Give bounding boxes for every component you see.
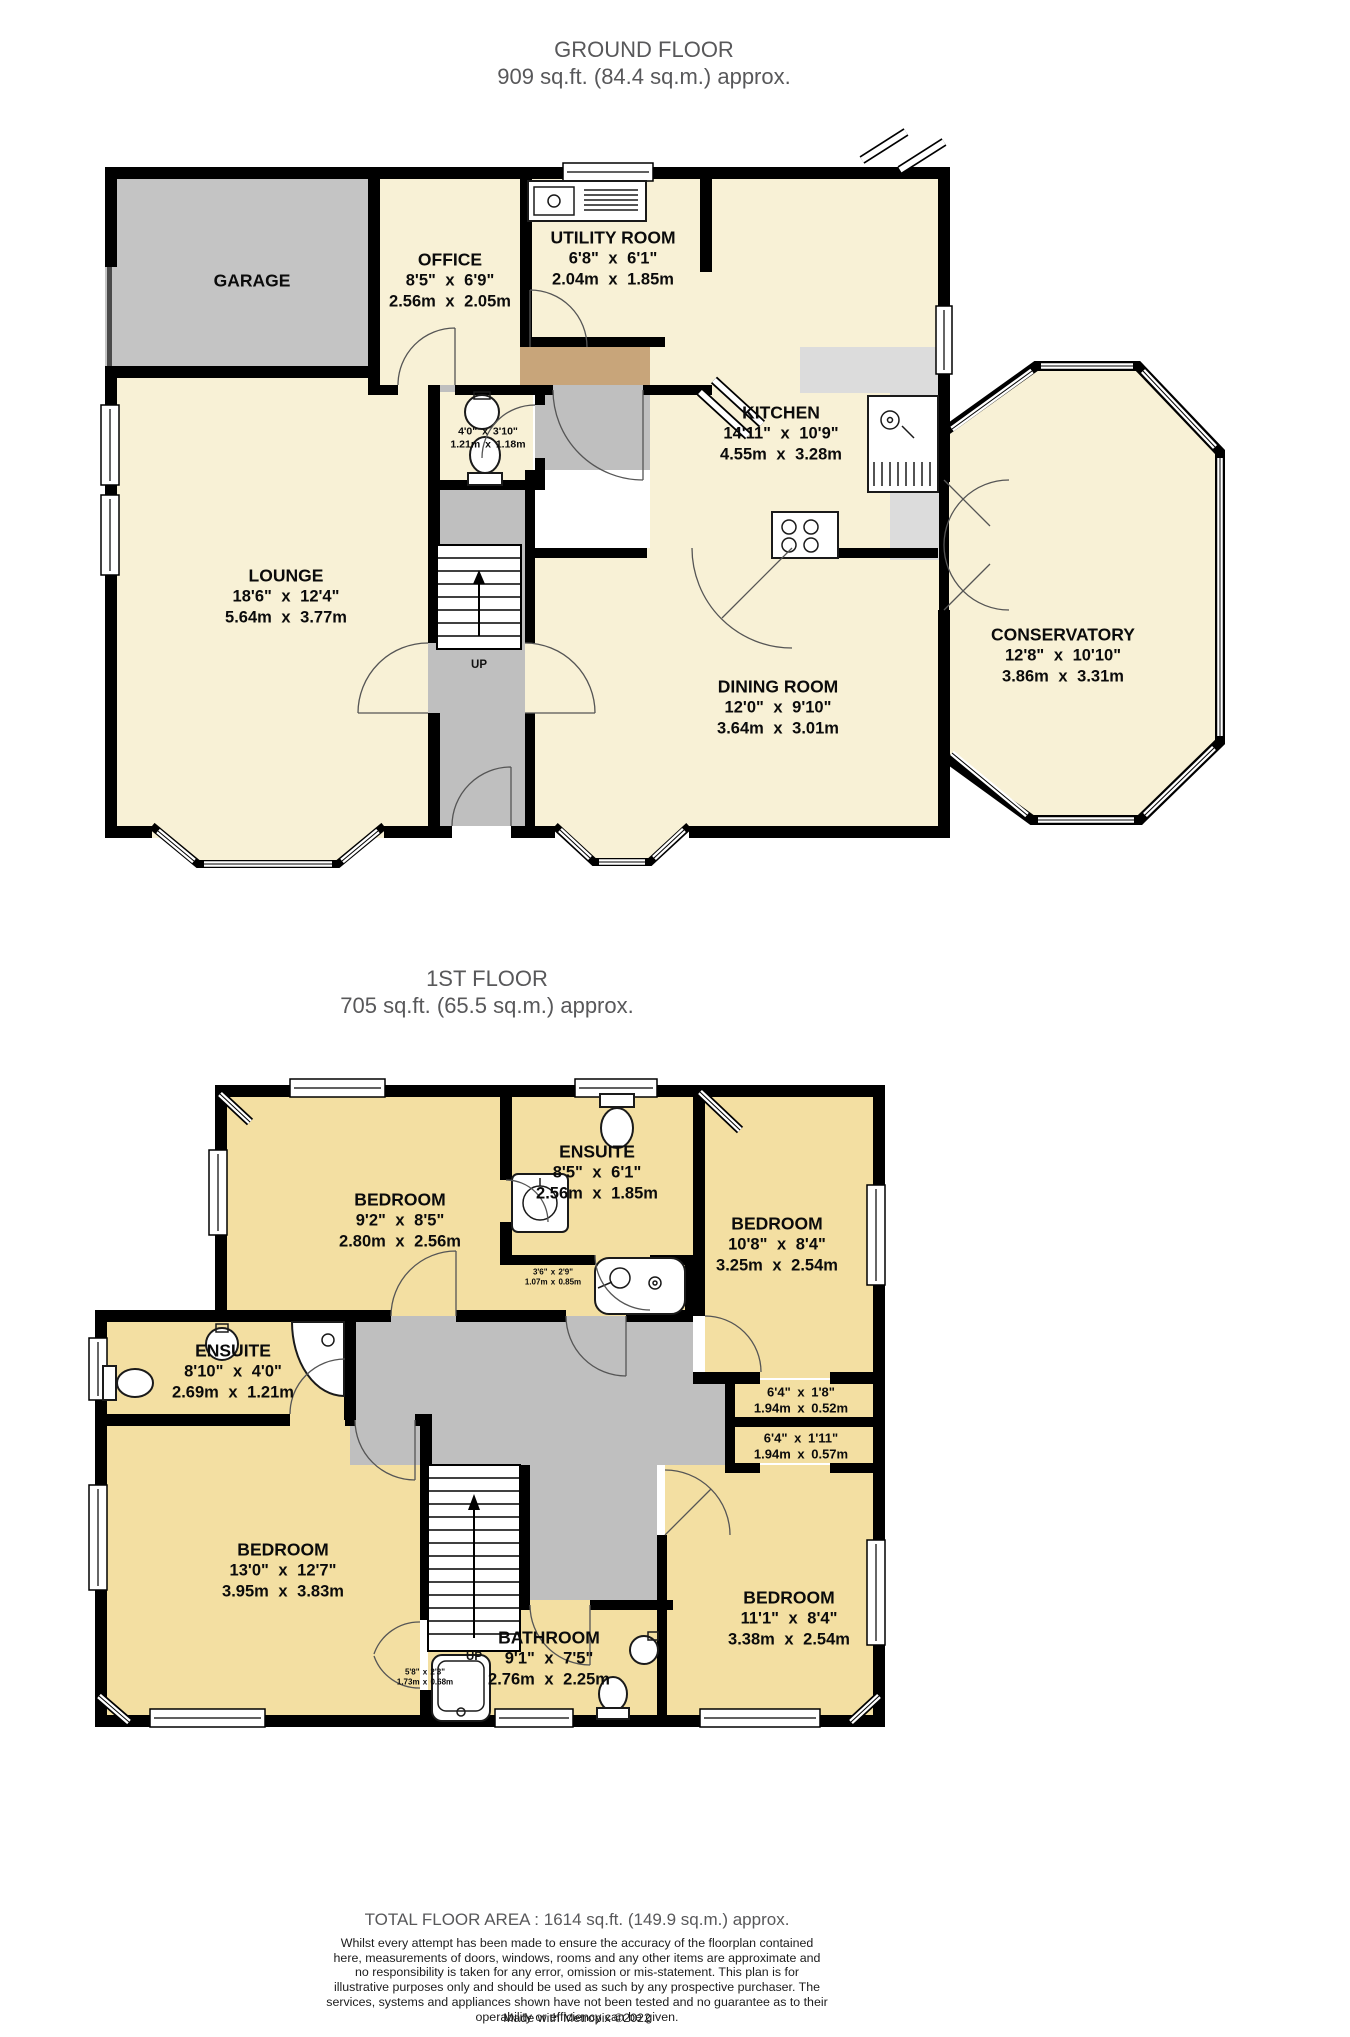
room-label-utility: UTILITY ROOM 6'8" x 6'1" 2.04m x 1.85m xyxy=(550,228,675,291)
room-name: ENSUITE xyxy=(172,1341,294,1362)
room-name: LOUNGE xyxy=(225,566,347,587)
room-size-imperial: 14'11" x 10'9" xyxy=(720,424,842,445)
hob-icon xyxy=(772,512,838,558)
room-size-metric: 2.56m x 1.85m xyxy=(536,1184,658,1205)
room-size-imperial: 3'6" x 2'9" xyxy=(525,1268,581,1278)
room-name: BEDROOM xyxy=(222,1540,344,1561)
room-size-metric: 2.76m x 2.25m xyxy=(488,1670,610,1691)
back-door xyxy=(862,132,944,170)
room-size-imperial: 8'5" x 6'1" xyxy=(536,1163,658,1184)
ground-floor-title-area: 909 sq.ft. (84.4 sq.m.) approx. xyxy=(497,63,790,90)
room-size-imperial: 8'5" x 6'9" xyxy=(389,271,511,292)
room-label-bedroom-top-right: BEDROOM 10'8" x 8'4" 3.25m x 2.54m xyxy=(716,1214,838,1277)
room-label-ensuite-top: ENSUITE 8'5" x 6'1" 2.56m x 1.85m xyxy=(536,1142,658,1205)
metropix-credit: Made with Metropix ©2022 xyxy=(503,2011,651,2025)
room-size-metric: 2.04m x 1.85m xyxy=(550,270,675,291)
floorplan-canvas: GROUND FLOOR 909 sq.ft. (84.4 sq.m.) app… xyxy=(0,0,1350,2037)
room-label-wc: 4'0" x 3'10" 1.21m x 1.18m xyxy=(450,426,525,451)
room-name: ENSUITE xyxy=(536,1142,658,1163)
ensuite-top-toilet-icon xyxy=(600,1094,634,1148)
kitchen-sink-icon xyxy=(868,396,938,492)
room-label-garage: GARAGE xyxy=(214,271,291,292)
room-size-imperial: 6'4" x 1'11" xyxy=(754,1431,848,1447)
conservatory-shell xyxy=(944,366,1220,820)
ground-stairs xyxy=(437,545,521,649)
room-size-metric: 2.56m x 2.05m xyxy=(389,292,511,313)
room-size-metric: 1.73m x 0.68m xyxy=(397,1677,453,1687)
room-size-imperial: 18'6" x 12'4" xyxy=(225,587,347,608)
first-floor-title-name: 1ST FLOOR xyxy=(340,965,633,992)
room-name: OFFICE xyxy=(389,250,511,271)
ensuite-left-toilet-icon xyxy=(103,1366,153,1400)
room-label-corridor: 3'6" x 2'9" 1.07m x 0.85m xyxy=(525,1268,581,1287)
room-label-bedroom-bottom-left: BEDROOM 13'0" x 12'7" 3.95m x 3.83m xyxy=(222,1540,344,1603)
room-size-imperial: 12'0" x 9'10" xyxy=(717,698,839,719)
room-label-closet: 5'8" x 2'3" 1.73m x 0.68m xyxy=(397,1668,453,1687)
room-size-imperial: 12'8" x 10'10" xyxy=(991,646,1135,667)
room-name: GARAGE xyxy=(214,271,291,292)
bathtub-icon xyxy=(432,1655,490,1721)
shower-tray-icon xyxy=(595,1258,685,1314)
utility-sink-icon xyxy=(528,181,646,221)
room-size-metric: 3.95m x 3.83m xyxy=(222,1582,344,1603)
total-floor-area: TOTAL FLOOR AREA : 1614 sq.ft. (149.9 sq… xyxy=(365,1910,790,1930)
room-size-imperial: 13'0" x 12'7" xyxy=(222,1561,344,1582)
room-size-imperial: 6'8" x 6'1" xyxy=(550,249,675,270)
room-size-metric: 1.21m x 1.18m xyxy=(450,438,525,451)
room-label-cupboard-1: 6'4" x 1'8" 1.94m x 0.52m xyxy=(754,1385,848,1416)
room-label-bedroom-bottom-right: BEDROOM 11'1" x 8'4" 3.38m x 2.54m xyxy=(728,1588,850,1651)
first-floor-title: 1ST FLOOR 705 sq.ft. (65.5 sq.m.) approx… xyxy=(340,965,633,1019)
room-label-kitchen: KITCHEN 14'11" x 10'9" 4.55m x 3.28m xyxy=(720,403,842,466)
room-size-imperial: 4'0" x 3'10" xyxy=(450,426,525,439)
room-size-metric: 3.64m x 3.01m xyxy=(717,719,839,740)
room-size-metric: 1.07m x 0.85m xyxy=(525,1277,581,1287)
room-size-imperial: 8'10" x 4'0" xyxy=(172,1362,294,1383)
room-label-office: OFFICE 8'5" x 6'9" 2.56m x 2.05m xyxy=(389,250,511,313)
room-size-metric: 5.64m x 3.77m xyxy=(225,608,347,629)
room-size-metric: 2.80m x 2.56m xyxy=(339,1232,461,1253)
room-name: BATHROOM xyxy=(488,1628,610,1649)
first-floor-title-area: 705 sq.ft. (65.5 sq.m.) approx. xyxy=(340,992,633,1019)
room-size-metric: 3.86m x 3.31m xyxy=(991,667,1135,688)
room-size-metric: 1.94m x 0.52m xyxy=(754,1400,848,1416)
room-label-lounge: LOUNGE 18'6" x 12'4" 5.64m x 3.77m xyxy=(225,566,347,629)
room-size-metric: 3.38m x 2.54m xyxy=(728,1630,850,1651)
room-size-imperial: 5'8" x 2'3" xyxy=(397,1668,453,1678)
room-size-imperial: 6'4" x 1'8" xyxy=(754,1385,848,1401)
ground-floor-title: GROUND FLOOR 909 sq.ft. (84.4 sq.m.) app… xyxy=(497,36,790,90)
room-size-metric: 3.25m x 2.54m xyxy=(716,1256,838,1277)
room-name: BEDROOM xyxy=(728,1588,850,1609)
room-name: DINING ROOM xyxy=(717,677,839,698)
room-size-imperial: 9'2" x 8'5" xyxy=(339,1211,461,1232)
room-size-metric: 4.55m x 3.28m xyxy=(720,445,842,466)
room-size-imperial: 11'1" x 8'4" xyxy=(728,1609,850,1630)
room-label-conservatory: CONSERVATORY 12'8" x 10'10" 3.86m x 3.31… xyxy=(991,625,1135,688)
first-stairs xyxy=(428,1465,520,1651)
room-size-metric: 1.94m x 0.57m xyxy=(754,1446,848,1462)
room-size-imperial: 9'1" x 7'5" xyxy=(488,1649,610,1670)
room-label-cupboard-2: 6'4" x 1'11" 1.94m x 0.57m xyxy=(754,1431,848,1462)
room-label-ensuite-left: ENSUITE 8'10" x 4'0" 2.69m x 1.21m xyxy=(172,1341,294,1404)
room-name: UTILITY ROOM xyxy=(550,228,675,249)
room-size-metric: 2.69m x 1.21m xyxy=(172,1383,294,1404)
room-size-imperial: 10'8" x 8'4" xyxy=(716,1235,838,1256)
room-name: BEDROOM xyxy=(339,1190,461,1211)
stairs-up-label-first: UP xyxy=(466,1651,482,1663)
floorplan-graphic xyxy=(0,0,1350,2037)
stairs-up-label-ground: UP xyxy=(471,659,487,671)
room-name: KITCHEN xyxy=(720,403,842,424)
room-label-dining: DINING ROOM 12'0" x 9'10" 3.64m x 3.01m xyxy=(717,677,839,740)
ground-floor-title-name: GROUND FLOOR xyxy=(497,36,790,63)
room-label-bedroom-top-left: BEDROOM 9'2" x 8'5" 2.80m x 2.56m xyxy=(339,1190,461,1253)
room-name: CONSERVATORY xyxy=(991,625,1135,646)
room-name: BEDROOM xyxy=(716,1214,838,1235)
room-label-bathroom: BATHROOM 9'1" x 7'5" 2.76m x 2.25m xyxy=(488,1628,610,1691)
